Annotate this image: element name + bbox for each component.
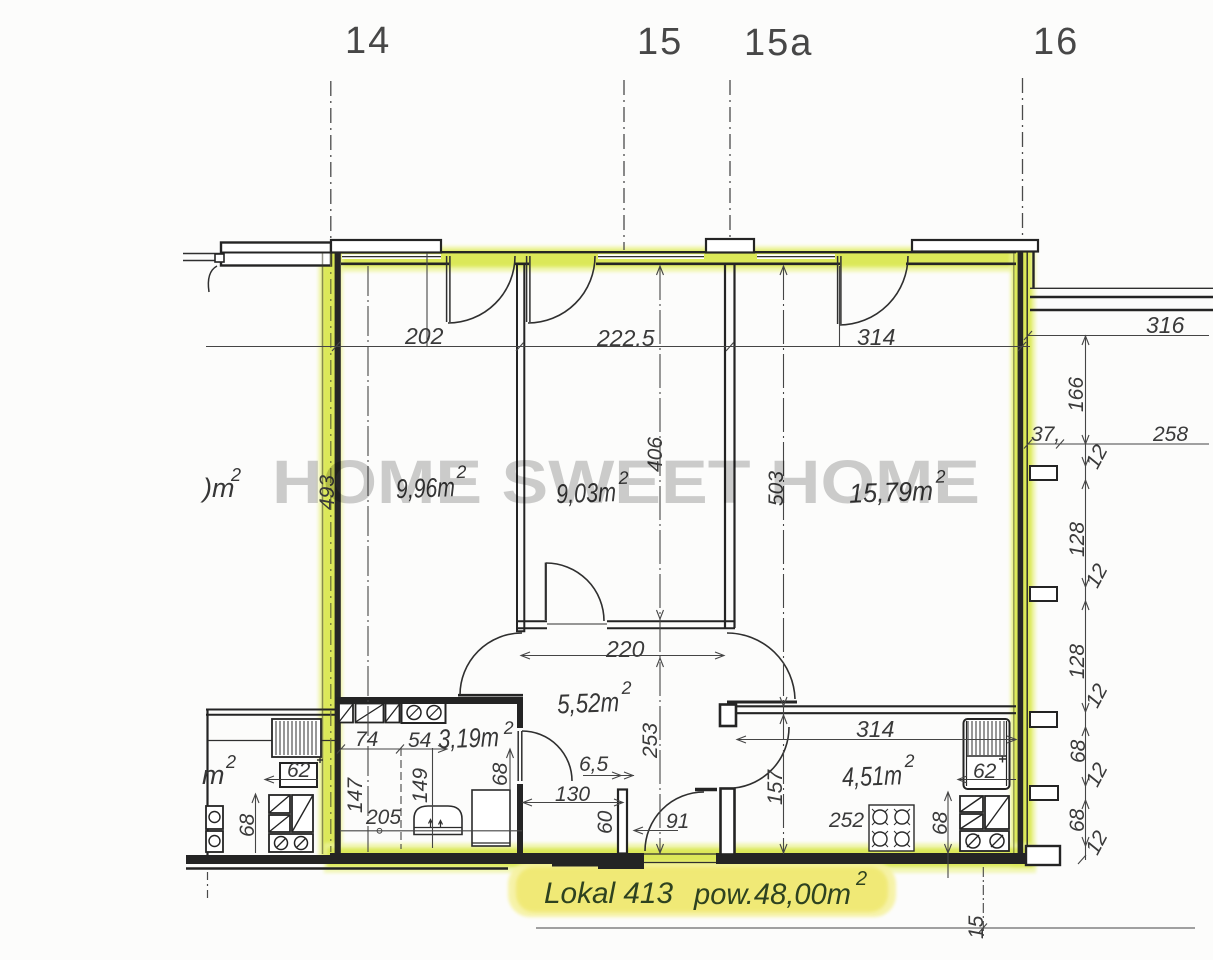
- svg-text:128: 128: [1066, 522, 1089, 557]
- svg-text:157: 157: [764, 769, 787, 805]
- svg-text:258: 258: [1152, 423, 1188, 446]
- svg-text:2: 2: [225, 752, 236, 772]
- svg-text:91: 91: [666, 810, 689, 833]
- svg-text:62: 62: [973, 760, 997, 783]
- svg-text:202: 202: [404, 323, 444, 349]
- svg-text:4,51m: 4,51m: [842, 760, 903, 792]
- svg-text:252: 252: [828, 809, 864, 832]
- svg-text:68: 68: [929, 811, 952, 835]
- svg-text:2: 2: [620, 678, 632, 698]
- svg-text:68: 68: [236, 813, 259, 837]
- svg-text:68: 68: [1066, 808, 1089, 832]
- svg-text:220: 220: [605, 636, 645, 662]
- svg-text:253: 253: [639, 723, 662, 759]
- svg-text:149: 149: [409, 768, 432, 803]
- svg-text:2: 2: [502, 718, 514, 738]
- svg-text:3,19m: 3,19m: [437, 722, 499, 754]
- svg-text:68: 68: [489, 762, 512, 786]
- svg-text:316: 316: [1146, 312, 1185, 338]
- svg-text:2: 2: [903, 751, 915, 771]
- svg-text:37,: 37,: [1031, 423, 1060, 446]
- svg-text:15: 15: [965, 915, 988, 939]
- svg-text:16: 16: [1033, 21, 1079, 63]
- svg-text:147: 147: [344, 777, 367, 813]
- svg-text:)m: )m: [200, 473, 234, 503]
- svg-text:222.5: 222.5: [596, 325, 655, 351]
- svg-text:HOME SWEET HOME: HOME SWEET HOME: [272, 448, 980, 516]
- svg-text:74: 74: [355, 728, 378, 751]
- svg-text:54: 54: [408, 729, 431, 752]
- svg-text:6,5: 6,5: [579, 753, 609, 776]
- svg-text:314: 314: [857, 324, 895, 350]
- svg-text:2: 2: [855, 868, 867, 890]
- svg-text:205: 205: [365, 806, 401, 829]
- svg-text:14: 14: [345, 20, 391, 62]
- svg-text:15: 15: [637, 21, 683, 63]
- svg-text:60: 60: [594, 810, 617, 834]
- svg-text:2: 2: [230, 465, 241, 485]
- svg-text:5,52m: 5,52m: [557, 687, 620, 719]
- svg-text:m: m: [202, 760, 225, 790]
- svg-text:314: 314: [856, 716, 894, 742]
- svg-text:62: 62: [287, 759, 311, 782]
- svg-text:15a: 15a: [744, 22, 813, 64]
- svg-text:128: 128: [1066, 644, 1089, 679]
- svg-text:68: 68: [1067, 739, 1090, 763]
- svg-text:166: 166: [1065, 377, 1088, 412]
- svg-text:pow.48,00m: pow.48,00m: [693, 878, 851, 911]
- svg-text:Lokal 413: Lokal 413: [544, 877, 673, 910]
